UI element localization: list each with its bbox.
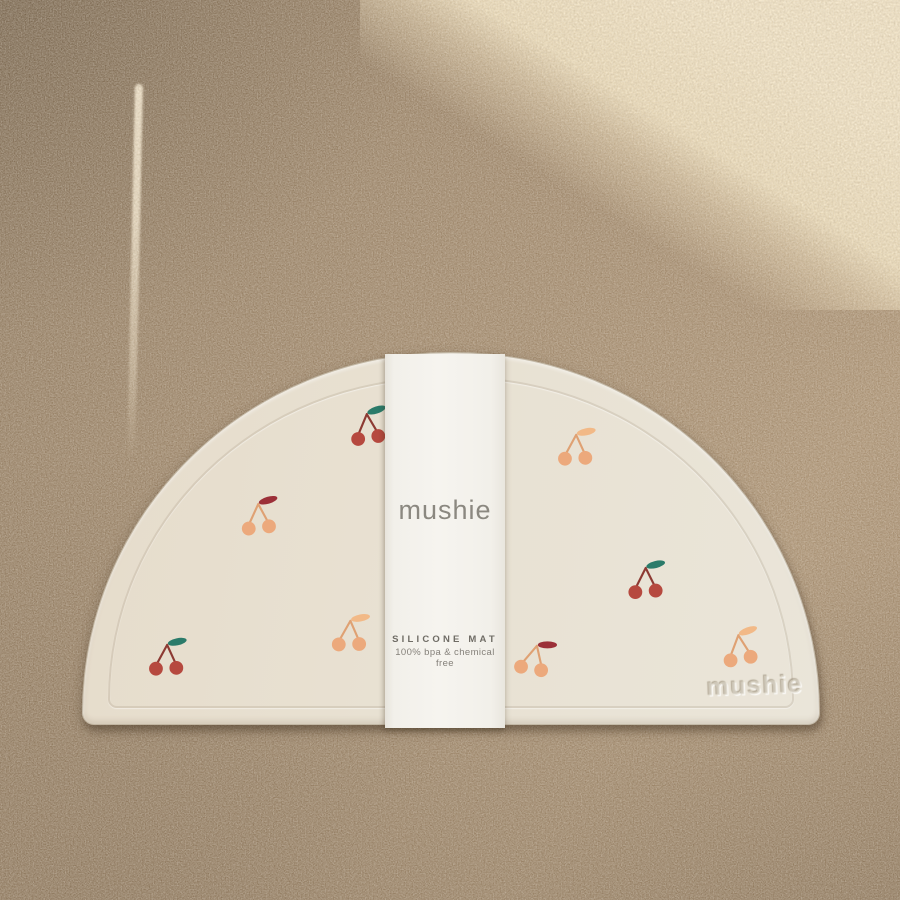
embossed-brand: mushie (700, 670, 811, 703)
product-photo: mushie mushie SILICONE MAT 100% bpa & ch… (0, 0, 900, 900)
sunlight-patch (360, 0, 900, 310)
paper-sleeve (385, 354, 505, 728)
light-streak (127, 84, 143, 460)
